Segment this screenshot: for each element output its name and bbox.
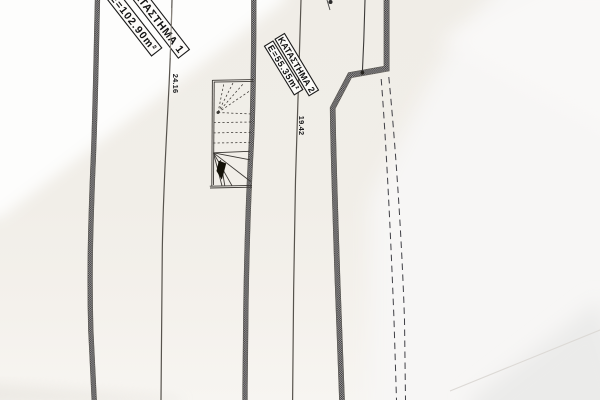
svg-text:24.16: 24.16 — [171, 74, 180, 94]
svg-text:19.42: 19.42 — [297, 116, 306, 136]
